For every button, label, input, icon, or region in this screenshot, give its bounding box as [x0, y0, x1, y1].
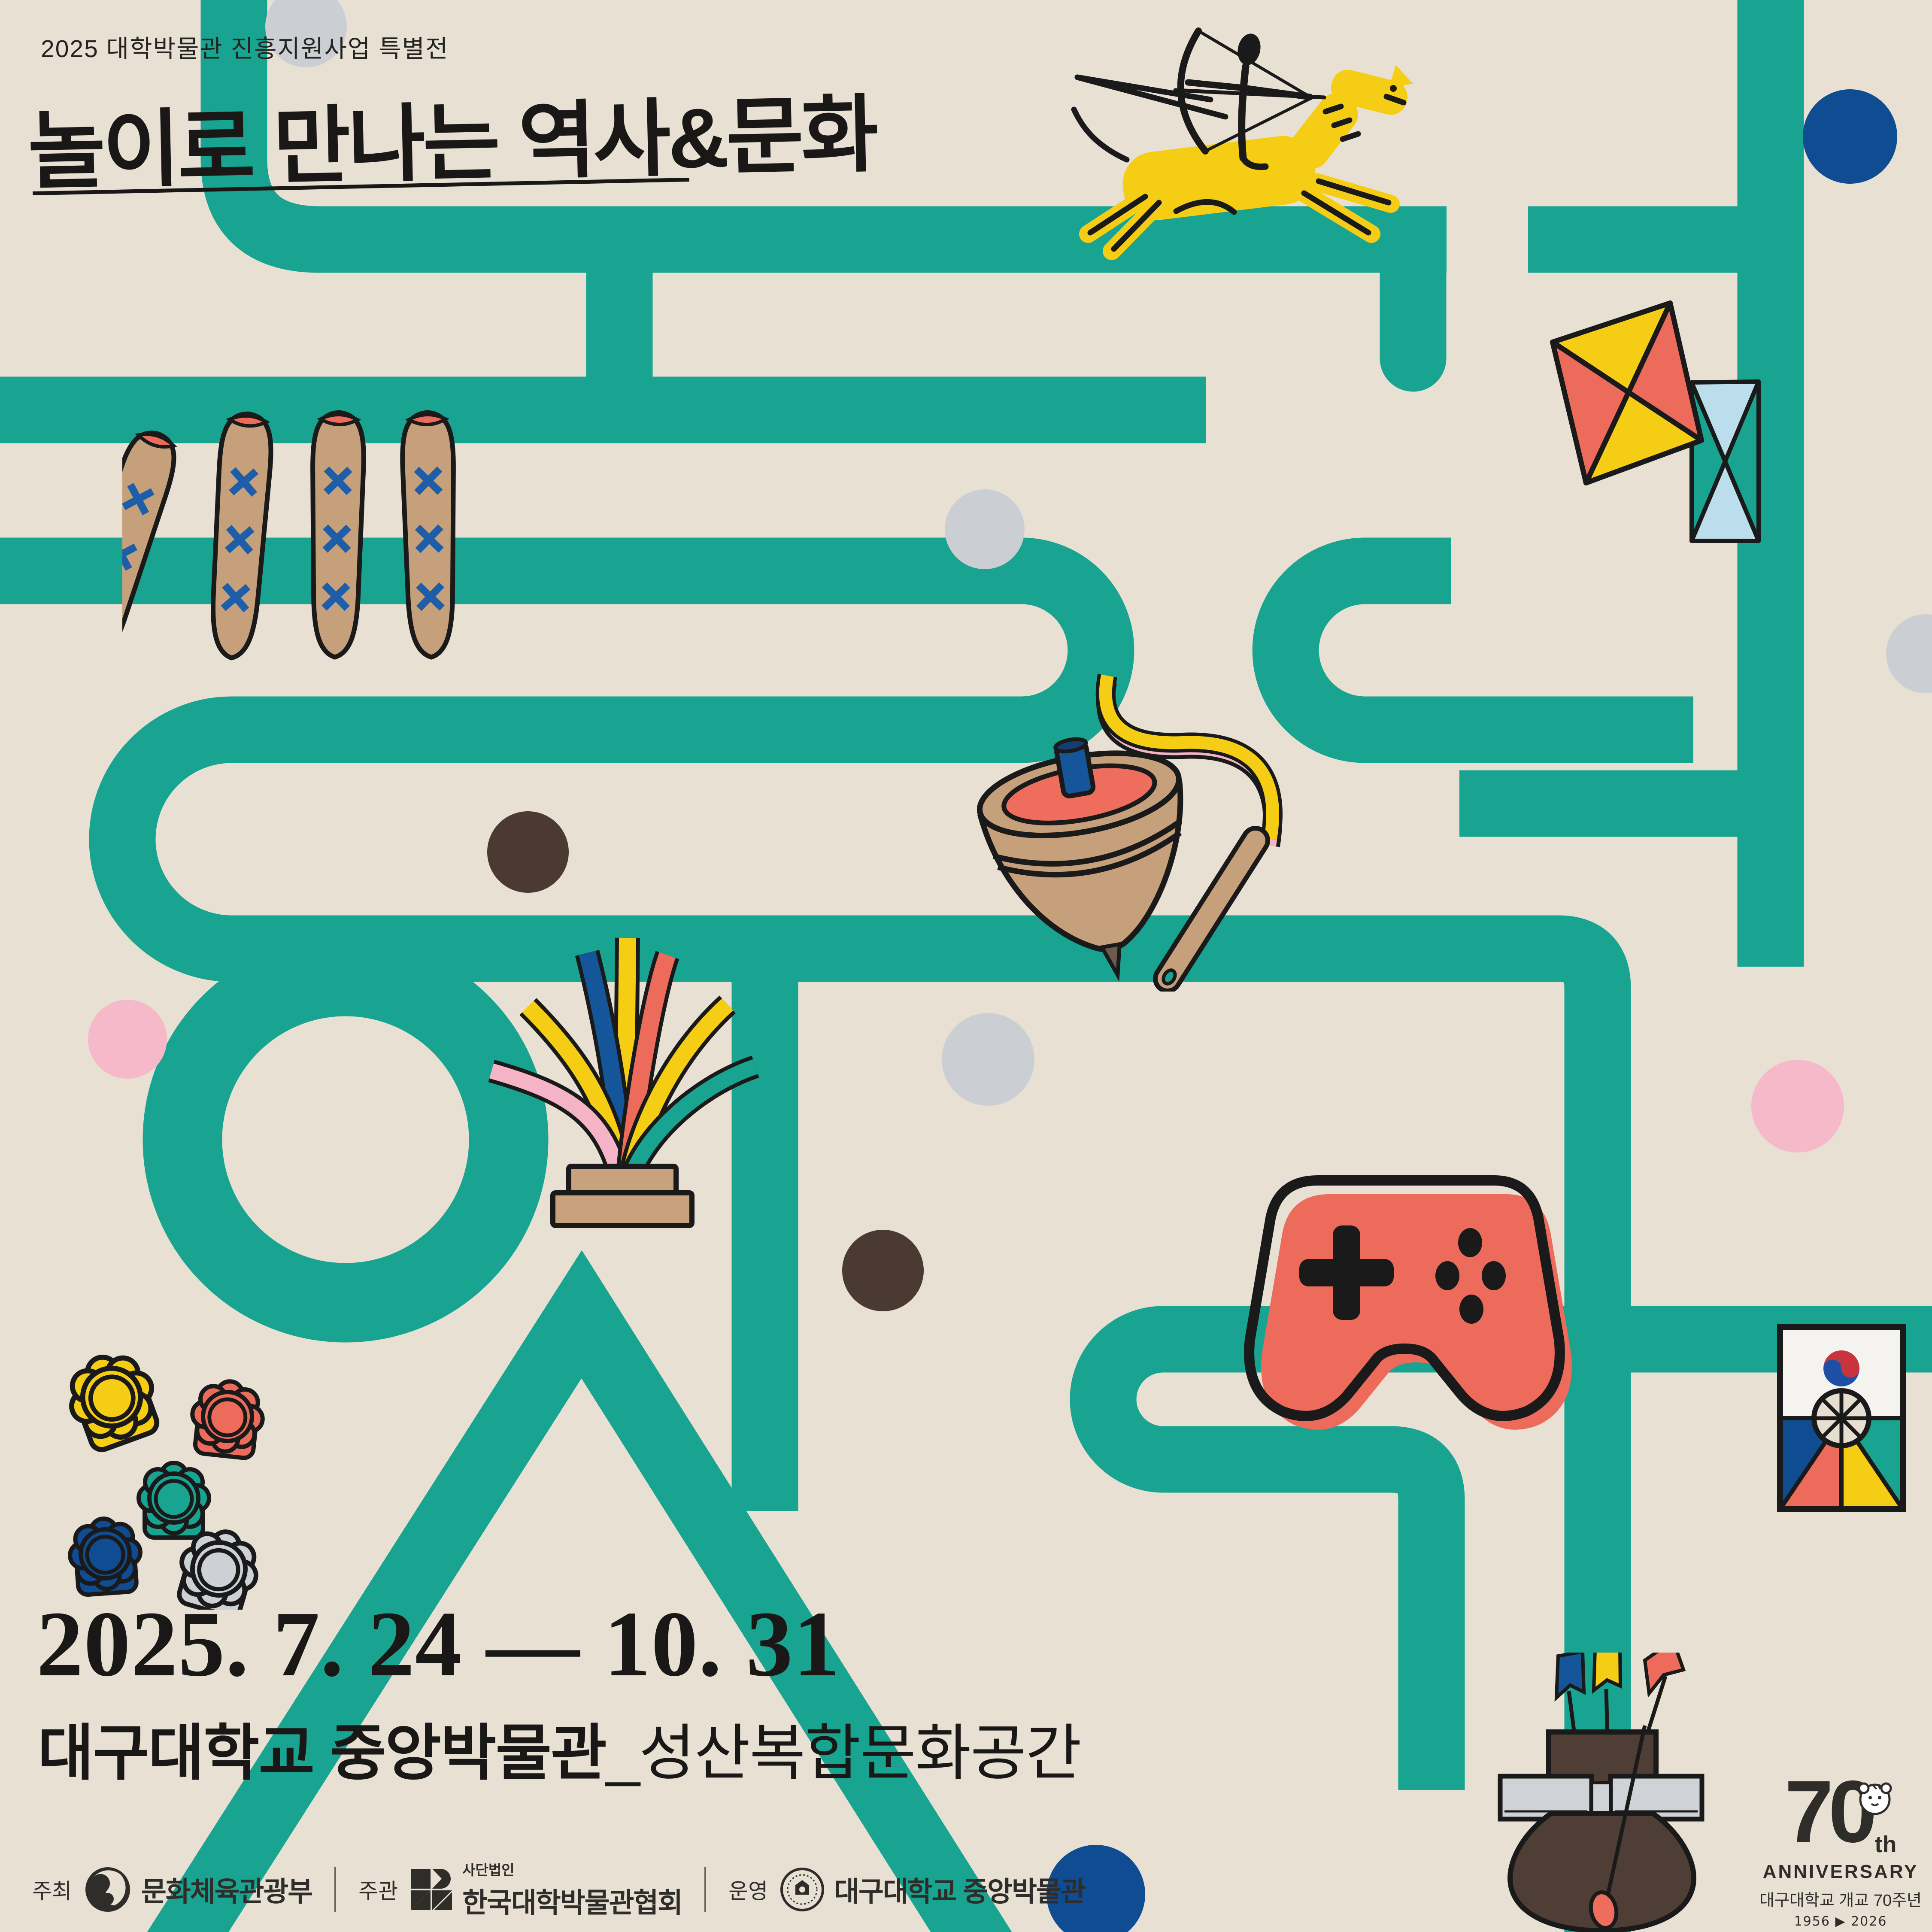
- spinning-top-icon: [959, 657, 1333, 992]
- university-seal-icon: [780, 1867, 825, 1912]
- game-controller-icon: [1228, 1137, 1584, 1455]
- dot-gray: [1886, 614, 1932, 693]
- shield-kite-icon: [1775, 1322, 1908, 1515]
- exhibition-poster: 2025 대학박물관 진흥지원사업 특별전 놀이로 만나는 역사&문화 2025…: [0, 0, 1932, 1932]
- dot-gray: [942, 1013, 1034, 1106]
- tuho-arrow-pot-icon: [1494, 1653, 1708, 1932]
- host-label: 주최: [32, 1874, 72, 1905]
- organizers-row: 주최 문화체육관광부 주관 사단법인 한국대학박물관협회 운영: [32, 1859, 1085, 1920]
- organizer-prefix: 사단법인: [462, 1859, 682, 1879]
- diamond-kite: [1553, 303, 1701, 483]
- edition-subtitle: 2025 대학박물관 진흥지원사업 특별전: [41, 29, 449, 64]
- anniversary-caption: 대구대학교 개교 70주년: [1759, 1887, 1922, 1911]
- anniversary-years: 1956 ▶ 2026: [1759, 1914, 1922, 1929]
- footer-divider: [704, 1867, 706, 1912]
- venue-name: 대구대학교 중앙박물관: [38, 1719, 606, 1787]
- host-name: 문화체육관광부: [141, 1870, 312, 1909]
- flower-game-pieces-icon: [47, 1318, 288, 1610]
- tiger-mascot-icon: [1854, 1777, 1896, 1818]
- jegi-shuttlecock-icon: [472, 929, 773, 1230]
- organizer-label: 주관: [358, 1874, 398, 1905]
- dot-pink: [1751, 1060, 1844, 1153]
- dot-brown: [842, 1230, 924, 1311]
- operator-name: 대구대학교 중앙박물관: [834, 1870, 1085, 1909]
- anniversary-number-row: 70 th: [1759, 1772, 1922, 1858]
- square-kite: [1692, 382, 1759, 541]
- organizer-name: 한국대학박물관협회: [462, 1881, 682, 1920]
- piece-blue: [67, 1516, 143, 1595]
- anniversary-word: ANNIVERSARY: [1759, 1861, 1922, 1883]
- operator-label: 운영: [728, 1874, 768, 1905]
- exhibition-dates: 2025. 7. 24 — 10. 31: [36, 1591, 840, 1698]
- yut-sticks-icon: [122, 408, 479, 674]
- venue-line: 대구대학교 중앙박물관_성산복합문화공간: [38, 1703, 1081, 1792]
- dot-gray: [945, 489, 1025, 569]
- mounted-archer-icon: [1047, 9, 1451, 270]
- venue-sub: _성산복합문화공간: [606, 1719, 1081, 1787]
- twin-kites-icon: [1522, 298, 1809, 547]
- piece-coral: [188, 1378, 266, 1459]
- piece-yellow: [58, 1344, 167, 1455]
- museum-association-icon: [410, 1868, 453, 1911]
- dot-brown: [487, 811, 569, 893]
- dot-pink: [88, 1000, 167, 1079]
- maze-right-hairpin: [1286, 571, 1693, 730]
- anniversary-suffix: th: [1875, 1831, 1897, 1858]
- taegeuk: [1823, 1350, 1859, 1386]
- piece-teal: [139, 1463, 209, 1538]
- footer-divider: [334, 1867, 336, 1912]
- dot-blue: [1803, 89, 1897, 184]
- anniversary-block: 70 th ANNIVERSARY 대구대학교 개교 70주년 1956 ▶ 2…: [1759, 1772, 1922, 1929]
- taegeuk-ministry-icon: [84, 1865, 132, 1914]
- maze-ring: [182, 977, 509, 1303]
